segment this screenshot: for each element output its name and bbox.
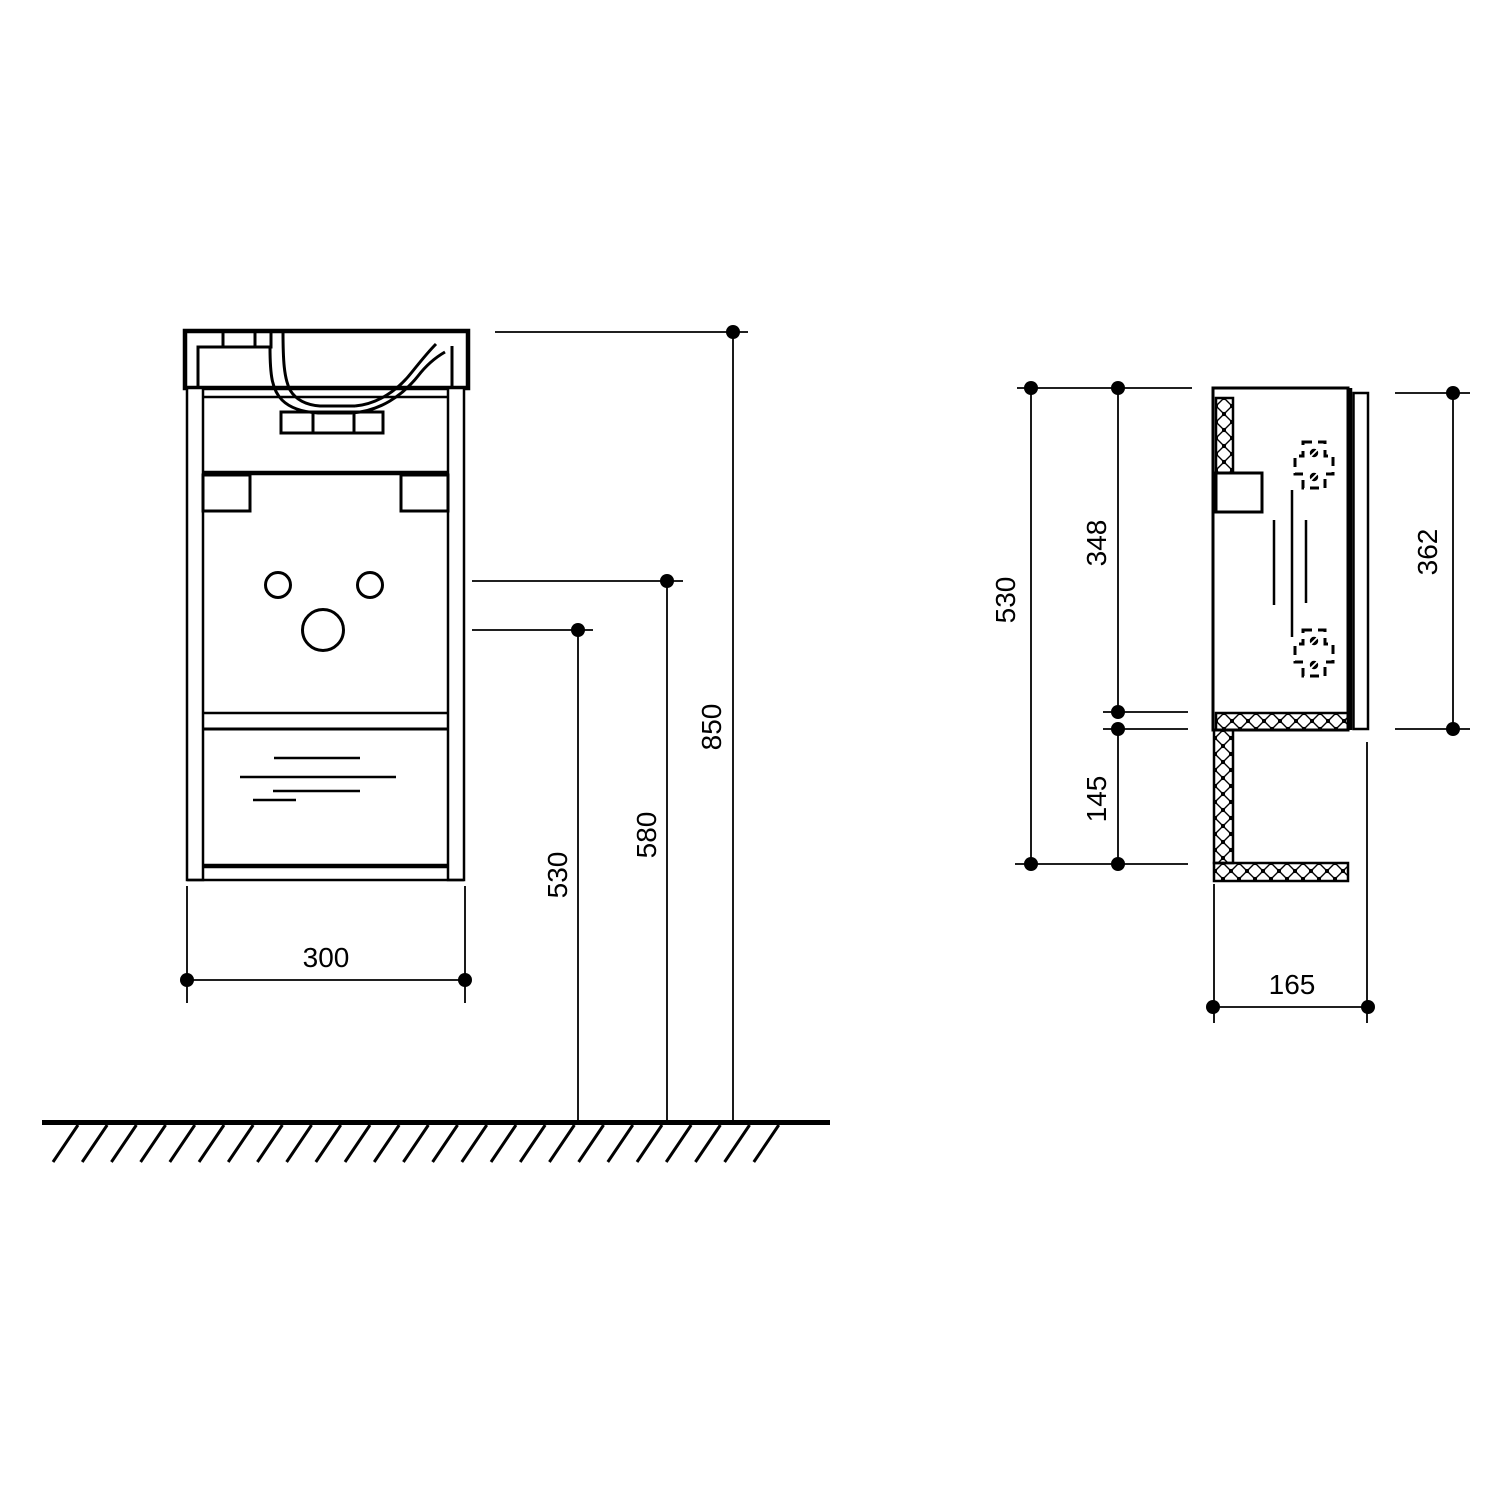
dim-dot: [726, 325, 740, 339]
technical-drawing: 300 530 580 850: [0, 0, 1500, 1500]
dim-dot: [1446, 722, 1460, 736]
dim-label-300: 300: [303, 942, 350, 973]
shelf-back-section: [1214, 730, 1233, 863]
dim-label-145: 145: [1081, 776, 1112, 823]
screw-slot: [1310, 661, 1318, 669]
back-panel-section: [1216, 398, 1233, 473]
dim-dot: [180, 973, 194, 987]
left-rail: [187, 388, 203, 880]
right-rail: [448, 388, 464, 880]
basin-outline: [185, 331, 468, 388]
shelf-bottom-section: [1214, 863, 1348, 881]
screw-slot: [1310, 637, 1318, 645]
dim-dot: [1206, 1000, 1220, 1014]
dim-dot: [660, 574, 674, 588]
dim-dot: [1111, 857, 1125, 871]
screw-slot: [1310, 473, 1318, 481]
dim-dot: [1024, 857, 1038, 871]
dim-label-165: 165: [1269, 969, 1316, 1000]
drawing-page: 300 530 580 850: [0, 0, 1500, 1500]
dim-dot: [1111, 705, 1125, 719]
dim-dot: [1361, 1000, 1375, 1014]
background: [0, 0, 1500, 1500]
dim-dot: [1024, 381, 1038, 395]
screw-slot: [1310, 449, 1318, 457]
dim-dot: [1446, 386, 1460, 400]
dim-label-362: 362: [1412, 529, 1443, 576]
dim-label-580: 580: [631, 812, 662, 859]
dim-dot: [1111, 381, 1125, 395]
dim-label-side-530: 530: [990, 577, 1021, 624]
dim-label-348: 348: [1081, 520, 1112, 567]
dim-dot: [1111, 722, 1125, 736]
dim-dot: [458, 973, 472, 987]
dim-label-530: 530: [542, 852, 573, 899]
dim-label-850: 850: [696, 704, 727, 751]
bottom-panel-section: [1216, 713, 1348, 730]
dim-dot: [571, 623, 585, 637]
